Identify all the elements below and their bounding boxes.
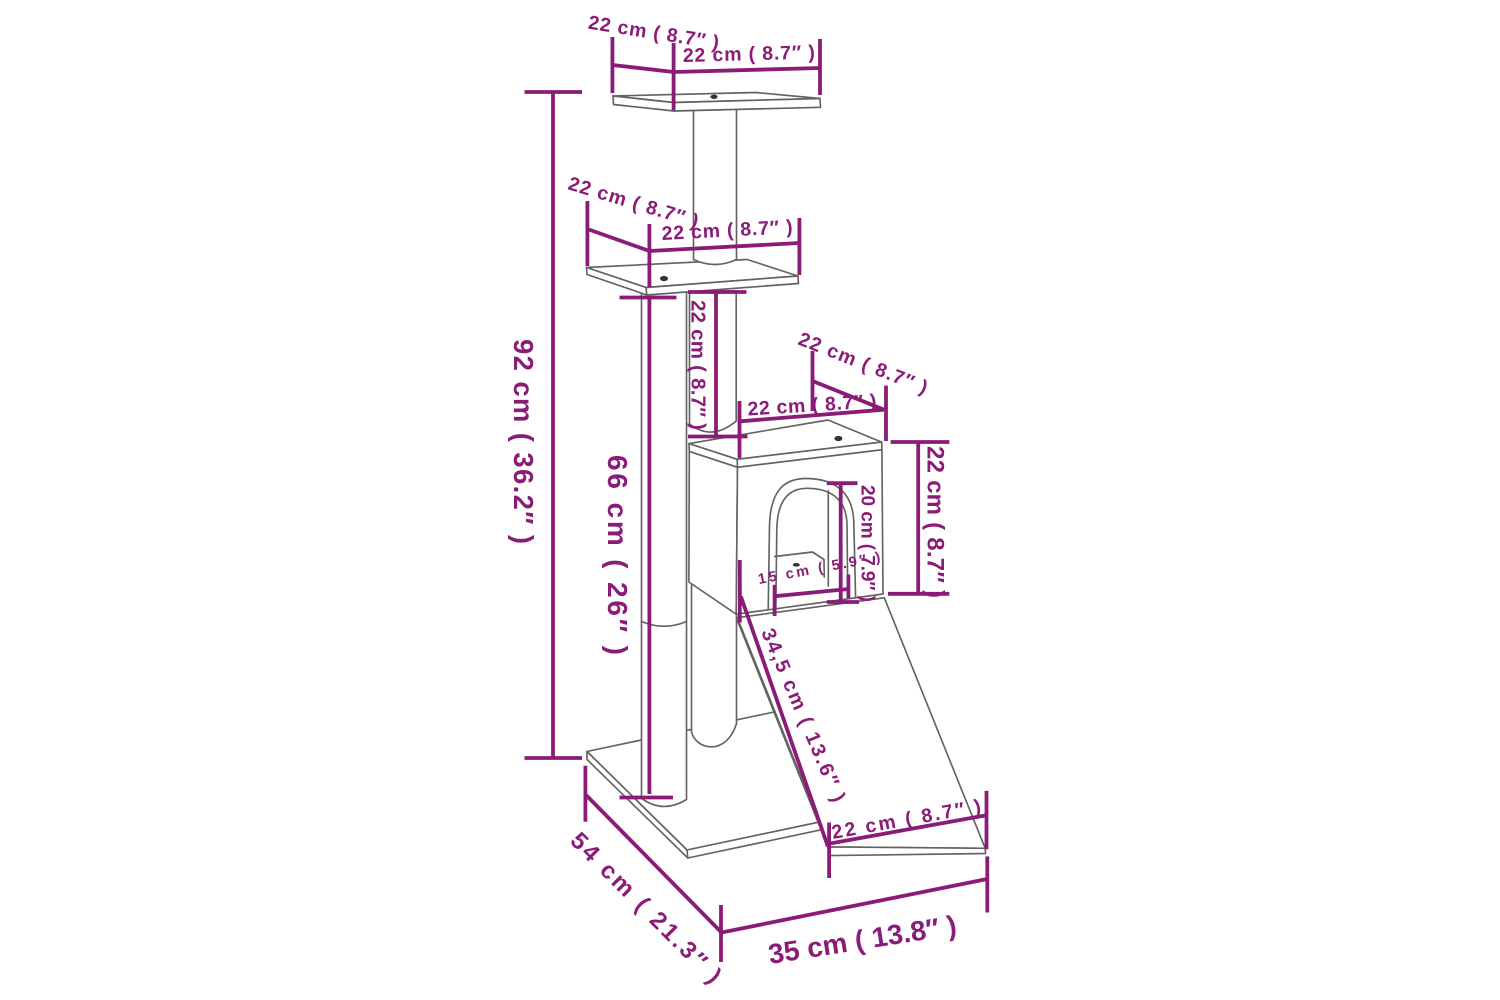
svg-text:92 cm ( 36.2″ ): 92 cm ( 36.2″ ) [508,339,539,544]
svg-text:22 cm ( 8.7″ ): 22 cm ( 8.7″ ) [922,446,949,598]
svg-text:66 cm ( 26″ ): 66 cm ( 26″ ) [602,455,633,655]
svg-text:20 cm ( 7.9″ ): 20 cm ( 7.9″ ) [857,485,878,602]
svg-text:22 cm ( 8.7″ ): 22 cm ( 8.7″ ) [683,42,816,67]
svg-text:22 cm ( 8.7″ ): 22 cm ( 8.7″ ) [687,300,710,430]
